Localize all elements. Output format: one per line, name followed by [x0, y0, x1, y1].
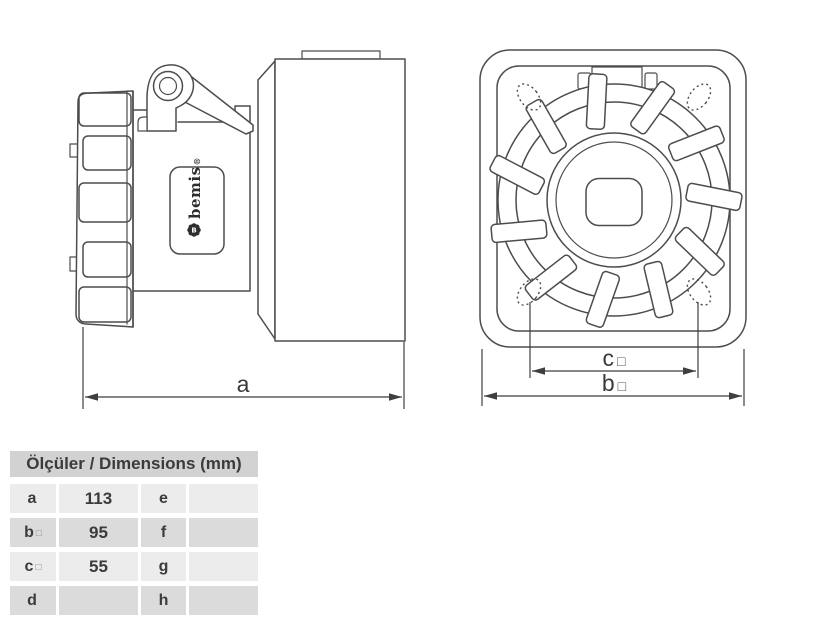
arrowhead-right	[683, 367, 696, 375]
logo-letter: B	[191, 227, 196, 235]
dim-value-h	[189, 586, 258, 615]
junction-box	[275, 51, 405, 341]
gland-cap	[70, 91, 133, 327]
dim-value-b: 95	[59, 518, 138, 547]
hinge-pivot-inner	[160, 78, 177, 95]
dim-value-g	[189, 552, 258, 581]
side-view: bemis® B a	[70, 51, 405, 409]
dim-key-b: b□	[10, 518, 56, 547]
dim-key-d: d	[10, 586, 56, 615]
dim-key-h: h	[141, 586, 186, 615]
dim-a-label: a	[237, 371, 250, 397]
dim-key-a: a	[10, 484, 56, 513]
dim-b-label: b□	[602, 370, 627, 396]
dim-key-e: e	[141, 484, 186, 513]
arrowhead-right	[729, 392, 742, 400]
arrowhead-right	[389, 393, 402, 401]
dim-value-d	[59, 586, 138, 615]
box-outline	[275, 59, 405, 341]
box-top-tab	[302, 51, 380, 59]
table-body: a 113 e b□ 95 f c□ 55 g d h	[10, 484, 258, 615]
dim-value-c: 55	[59, 552, 138, 581]
dim-value-a: 113	[59, 484, 138, 513]
flange-adapter	[258, 61, 275, 339]
dim-value-f	[189, 518, 258, 547]
mounting-hole-marker	[683, 80, 716, 115]
arrowhead-left	[532, 367, 545, 375]
hinge-lever	[138, 65, 253, 134]
table-title: Ölçüler / Dimensions (mm)	[10, 451, 258, 477]
brand-label: bemis® B	[170, 157, 224, 254]
dim-key-c: c□	[10, 552, 56, 581]
arrowhead-left	[484, 392, 497, 400]
side-tab	[645, 73, 657, 89]
front-view: c□ b□	[480, 50, 746, 406]
dim-value-e	[189, 484, 258, 513]
arrowhead-left	[85, 393, 98, 401]
dim-key-f: f	[141, 518, 186, 547]
dim-key-g: g	[141, 552, 186, 581]
product-dimensions-page: bemis® B a	[0, 0, 825, 625]
hinge-foot	[138, 117, 147, 131]
dim-c-label: c□	[603, 345, 627, 371]
technical-drawing: bemis® B a	[0, 0, 825, 445]
dimensions-table: Ölçüler / Dimensions (mm) a 113 e b□ 95 …	[10, 451, 258, 615]
